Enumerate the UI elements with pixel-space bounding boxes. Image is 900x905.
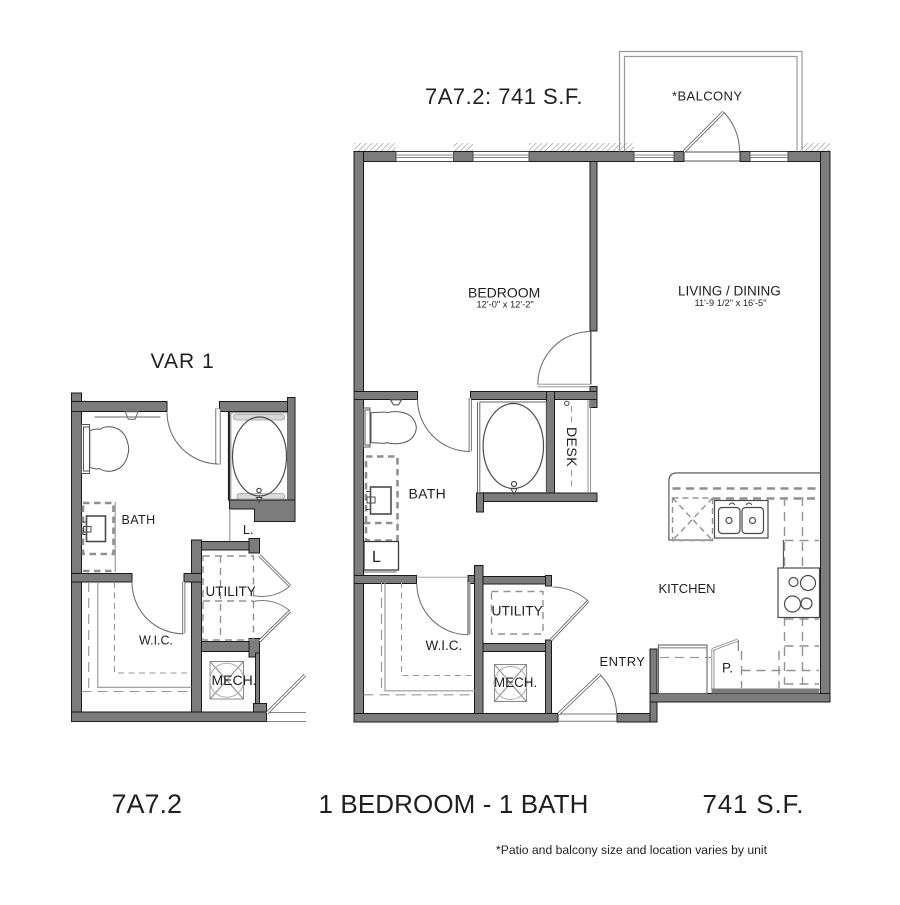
svg-text:W.I.C.: W.I.C. bbox=[139, 634, 173, 648]
svg-text:BATH: BATH bbox=[409, 486, 447, 502]
svg-text:MECH.: MECH. bbox=[212, 672, 257, 688]
svg-text:UTILITY: UTILITY bbox=[492, 604, 543, 619]
svg-text:L: L bbox=[372, 549, 381, 566]
svg-text:11'-9 1/2" x 16'-5": 11'-9 1/2" x 16'-5" bbox=[695, 298, 767, 308]
svg-text:LIVING / DINING: LIVING / DINING bbox=[678, 284, 781, 299]
svg-text:VAR 1: VAR 1 bbox=[151, 350, 215, 373]
svg-text:W.I.C.: W.I.C. bbox=[426, 638, 463, 653]
svg-text:KITCHEN: KITCHEN bbox=[659, 581, 716, 596]
svg-text:7A7.2: 741 S.F.: 7A7.2: 741 S.F. bbox=[425, 84, 583, 109]
svg-text:P.: P. bbox=[722, 661, 733, 676]
svg-text:1 BEDROOM - 1 BATH: 1 BEDROOM - 1 BATH bbox=[319, 789, 589, 819]
svg-text:BATH: BATH bbox=[122, 513, 156, 527]
svg-text:DESK: DESK bbox=[564, 427, 580, 467]
svg-text:12'-0" x 12'-2": 12'-0" x 12'-2" bbox=[477, 300, 534, 310]
svg-text:MECH.: MECH. bbox=[494, 675, 537, 690]
svg-text:ENTRY: ENTRY bbox=[600, 654, 646, 669]
svg-text:UTILITY: UTILITY bbox=[206, 584, 256, 599]
svg-text:741 S.F.: 741 S.F. bbox=[703, 789, 805, 819]
svg-text:*BALCONY: *BALCONY bbox=[672, 89, 742, 104]
svg-text:7A7.2: 7A7.2 bbox=[112, 789, 183, 819]
svg-text:*Patio and balcony size and lo: *Patio and balcony size and location var… bbox=[496, 843, 768, 857]
svg-text:L.: L. bbox=[243, 523, 253, 537]
svg-text:BEDROOM: BEDROOM bbox=[468, 285, 540, 301]
